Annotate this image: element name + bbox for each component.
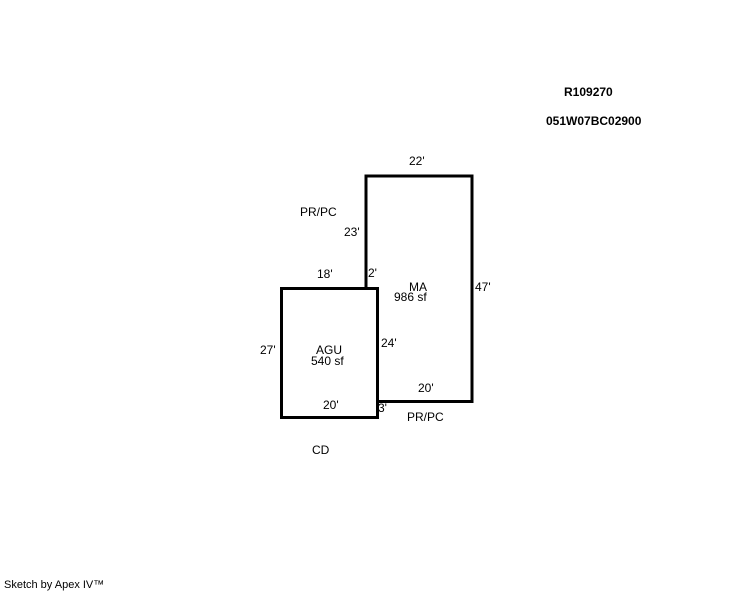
dimension-agu-left: 27' [260, 344, 276, 356]
dimension-agu-right: 24' [381, 337, 397, 349]
annotation-porch-bottom: PR/PC [407, 411, 444, 423]
annotation-cd: CD [312, 444, 329, 456]
dimension-ma-bottom: 20' [418, 382, 434, 394]
sketch-canvas: R109270 051W07BC02900 22' 47' 20' 23' 2'… [0, 0, 744, 595]
sketch-outlines [0, 0, 744, 595]
sketch-credit: Sketch by Apex IV™ [4, 579, 104, 591]
dimension-agu-bottom: 20' [323, 399, 339, 411]
dimension-agu-top: 18' [317, 268, 333, 280]
annotation-porch-top: PR/PC [300, 206, 337, 218]
dimension-ma-top: 22' [409, 155, 425, 167]
dimension-ma-bottom-offset: 3' [378, 402, 387, 414]
dimension-ma-left-upper: 23' [344, 226, 360, 238]
dimension-ma-jog: 2' [368, 267, 377, 279]
area-size-ma: 986 sf [394, 291, 427, 303]
parcel-number: 051W07BC02900 [546, 115, 641, 127]
dimension-ma-right: 47' [475, 281, 491, 293]
record-number: R109270 [564, 86, 613, 98]
area-size-agu: 540 sf [311, 355, 344, 367]
